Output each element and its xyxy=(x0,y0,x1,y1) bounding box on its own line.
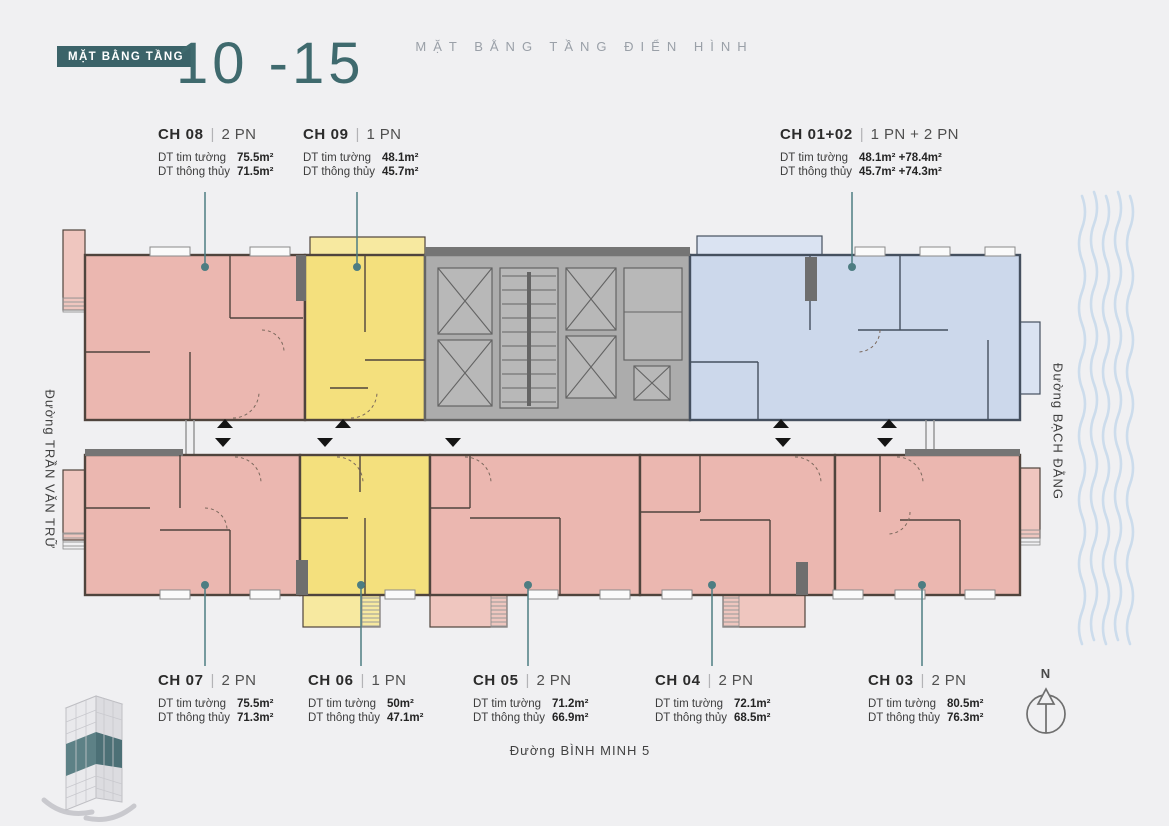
building-illustration xyxy=(44,696,134,820)
top-wing xyxy=(63,230,1040,420)
area-value-thong: 71.5m² xyxy=(237,166,273,180)
north-label: N xyxy=(1038,666,1054,681)
area-value-thong: 47.1m² xyxy=(387,712,423,726)
river-waves xyxy=(1079,192,1133,644)
separator: | xyxy=(860,126,864,143)
area-label-tim: DT tim tường xyxy=(158,152,237,166)
corridor xyxy=(186,419,934,455)
area-value-tim: 48.1m² +78.4m² xyxy=(859,152,942,166)
area-value-thong: 68.5m² xyxy=(734,712,770,726)
unit-label-ch04: CH 04|2 PN DT tim tường72.1m² DT thông t… xyxy=(655,672,865,725)
area-label-tim: DT tim tường xyxy=(303,152,382,166)
area-value-tim: 72.1m² xyxy=(734,698,770,712)
unit-id: CH 03 xyxy=(868,672,914,689)
area-value-thong: 45.7m² xyxy=(382,166,418,180)
unit-type: 2 PN xyxy=(221,126,256,143)
separator: | xyxy=(361,672,365,689)
separator: | xyxy=(211,672,215,689)
unit-id: CH 08 xyxy=(158,126,204,143)
area-value-thong: 45.7m² +74.3m² xyxy=(859,166,942,180)
area-label-thong: DT thông thủy xyxy=(158,166,237,180)
area-value-tim: 71.2m² xyxy=(552,698,588,712)
floor-plan-badge: MẶT BẰNG TẦNG xyxy=(57,46,195,67)
area-label-thong: DT thông thủy xyxy=(473,712,552,726)
area-value-thong: 76.3m² xyxy=(947,712,983,726)
area-value-tim: 48.1m² xyxy=(382,152,418,166)
area-label-thong: DT thông thủy xyxy=(868,712,947,726)
side-block-left-bottom xyxy=(63,470,85,540)
side-block-right-top xyxy=(1020,322,1040,394)
unit-type: 2 PN xyxy=(718,672,753,689)
floor-range: 10 -15 xyxy=(176,30,364,97)
unit-ch01-02-area xyxy=(690,255,1020,420)
side-block-right-bottom xyxy=(1020,468,1040,538)
unit-id: CH 06 xyxy=(308,672,354,689)
unit-label-ch09: CH 09|1 PN DT tim tường48.1m² DT thông t… xyxy=(303,126,513,179)
unit-ch03-area xyxy=(835,455,1020,595)
area-value-tim: 75.5m² xyxy=(237,152,273,166)
area-label-tim: DT tim tường xyxy=(308,698,387,712)
area-label-tim: DT tim tường xyxy=(868,698,947,712)
unit-id: CH 09 xyxy=(303,126,349,143)
street-label-right: Đường BẠCH ĐẰNG xyxy=(1051,342,1066,522)
entry-arrows xyxy=(215,419,897,447)
badge-label: MẶT BẰNG TẦNG xyxy=(68,51,184,63)
area-label-thong: DT thông thủy xyxy=(780,166,859,180)
bottom-wing xyxy=(63,449,1040,627)
area-label-tim: DT tim tường xyxy=(780,152,859,166)
elevators-and-stairs xyxy=(425,247,690,408)
area-value-tim: 80.5m² xyxy=(947,698,983,712)
balcony-ch01 xyxy=(697,236,822,256)
unit-ch07-area xyxy=(85,455,300,595)
area-value-tim: 75.5m² xyxy=(237,698,273,712)
area-label-tim: DT tim tường xyxy=(473,698,552,712)
unit-ch08-area xyxy=(85,255,305,420)
unit-type: 2 PN xyxy=(931,672,966,689)
unit-type: 1 PN xyxy=(371,672,406,689)
area-value-thong: 66.9m² xyxy=(552,712,588,726)
street-label-bottom: Đường BÌNH MINH 5 xyxy=(430,743,730,758)
area-label-thong: DT thông thủy xyxy=(308,712,387,726)
page-title: MẶT BẰNG TẦNG ĐIỂN HÌNH xyxy=(415,39,753,54)
area-label-thong: DT thông thủy xyxy=(158,712,237,726)
unit-type: 2 PN xyxy=(536,672,571,689)
unit-label-ch05: CH 05|2 PN DT tim tường71.2m² DT thông t… xyxy=(473,672,683,725)
separator: | xyxy=(708,672,712,689)
separator: | xyxy=(211,126,215,143)
area-label-tim: DT tim tường xyxy=(158,698,237,712)
separator: | xyxy=(921,672,925,689)
unit-ch05-area xyxy=(430,455,640,595)
unit-id: CH 01+02 xyxy=(780,126,853,143)
unit-type: 1 PN xyxy=(366,126,401,143)
area-value-tim: 50m² xyxy=(387,698,414,712)
unit-id: CH 05 xyxy=(473,672,519,689)
unit-type: 2 PN xyxy=(221,672,256,689)
street-label-left: Đường TRẦN VĂN TRỮ xyxy=(43,380,58,560)
balcony-ch09 xyxy=(310,237,425,256)
unit-id: CH 07 xyxy=(158,672,204,689)
area-label-thong: DT thông thủy xyxy=(655,712,734,726)
unit-id: CH 04 xyxy=(655,672,701,689)
separator: | xyxy=(526,672,530,689)
unit-type: 1 PN + 2 PN xyxy=(871,126,959,143)
area-label-thong: DT thông thủy xyxy=(303,166,382,180)
unit-label-ch01-02: CH 01+02|1 PN + 2 PN DT tim tường48.1m² … xyxy=(780,126,990,179)
area-value-thong: 71.3m² xyxy=(237,712,273,726)
area-label-tim: DT tim tường xyxy=(655,698,734,712)
separator: | xyxy=(356,126,360,143)
